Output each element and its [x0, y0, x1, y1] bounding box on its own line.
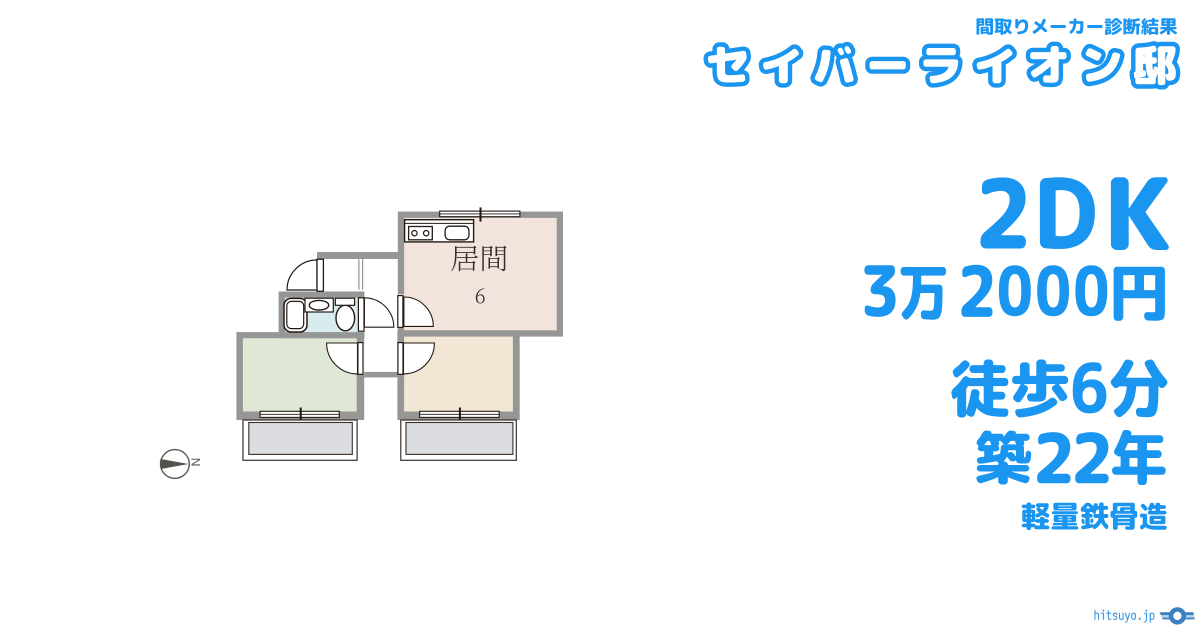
svg-text:N: N	[188, 458, 202, 467]
